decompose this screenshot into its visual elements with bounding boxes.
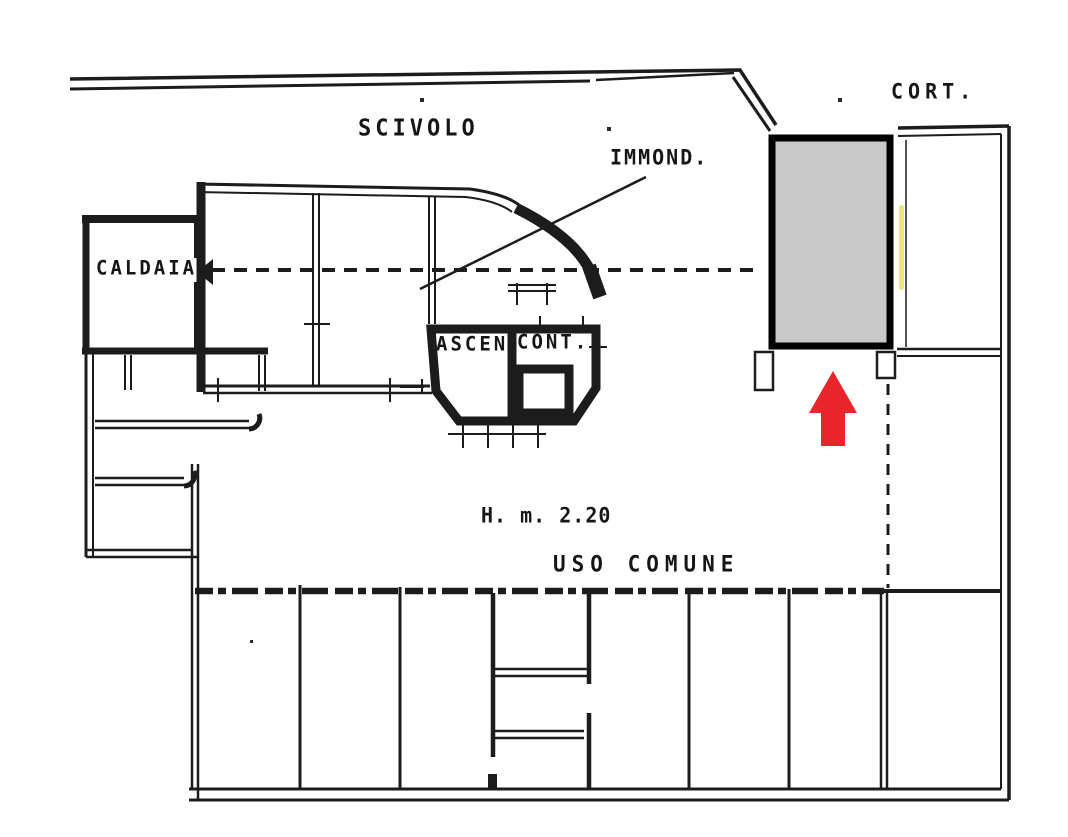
red-arrow	[809, 371, 857, 446]
caldaia-room-walls	[82, 215, 268, 391]
floor-plan-drawing	[0, 0, 1068, 837]
label-uso-comune: USO COMUNE	[553, 551, 739, 576]
wall-stub-left	[755, 352, 773, 390]
label-cont: CONT.	[517, 330, 589, 353]
cont-shaft	[519, 369, 569, 413]
label-immond: IMMOND.	[610, 144, 708, 169]
door-arc	[249, 414, 260, 429]
label-caldaia: CALDAIA	[96, 256, 197, 279]
left-side-rooms	[86, 353, 260, 800]
label-height-note: H. m. 2.20	[481, 502, 611, 527]
bottom-stalls	[189, 585, 1009, 800]
yellow-marker	[899, 205, 904, 290]
cort-room-walls	[897, 126, 1009, 800]
immond-leader-line	[420, 177, 646, 289]
highlight-rect	[772, 138, 890, 346]
label-cort: CORT.	[891, 78, 976, 103]
label-scivolo: SCIVOLO	[358, 115, 479, 141]
wall-stub-right	[877, 352, 895, 378]
central-block-walls	[197, 182, 519, 402]
label-ascen: ASCEN	[436, 332, 508, 355]
floor-plan: SCIVOLO IMMOND. CORT. CALDAIA ASCEN CONT…	[0, 0, 1068, 837]
highlighted-parking-space	[755, 138, 904, 390]
